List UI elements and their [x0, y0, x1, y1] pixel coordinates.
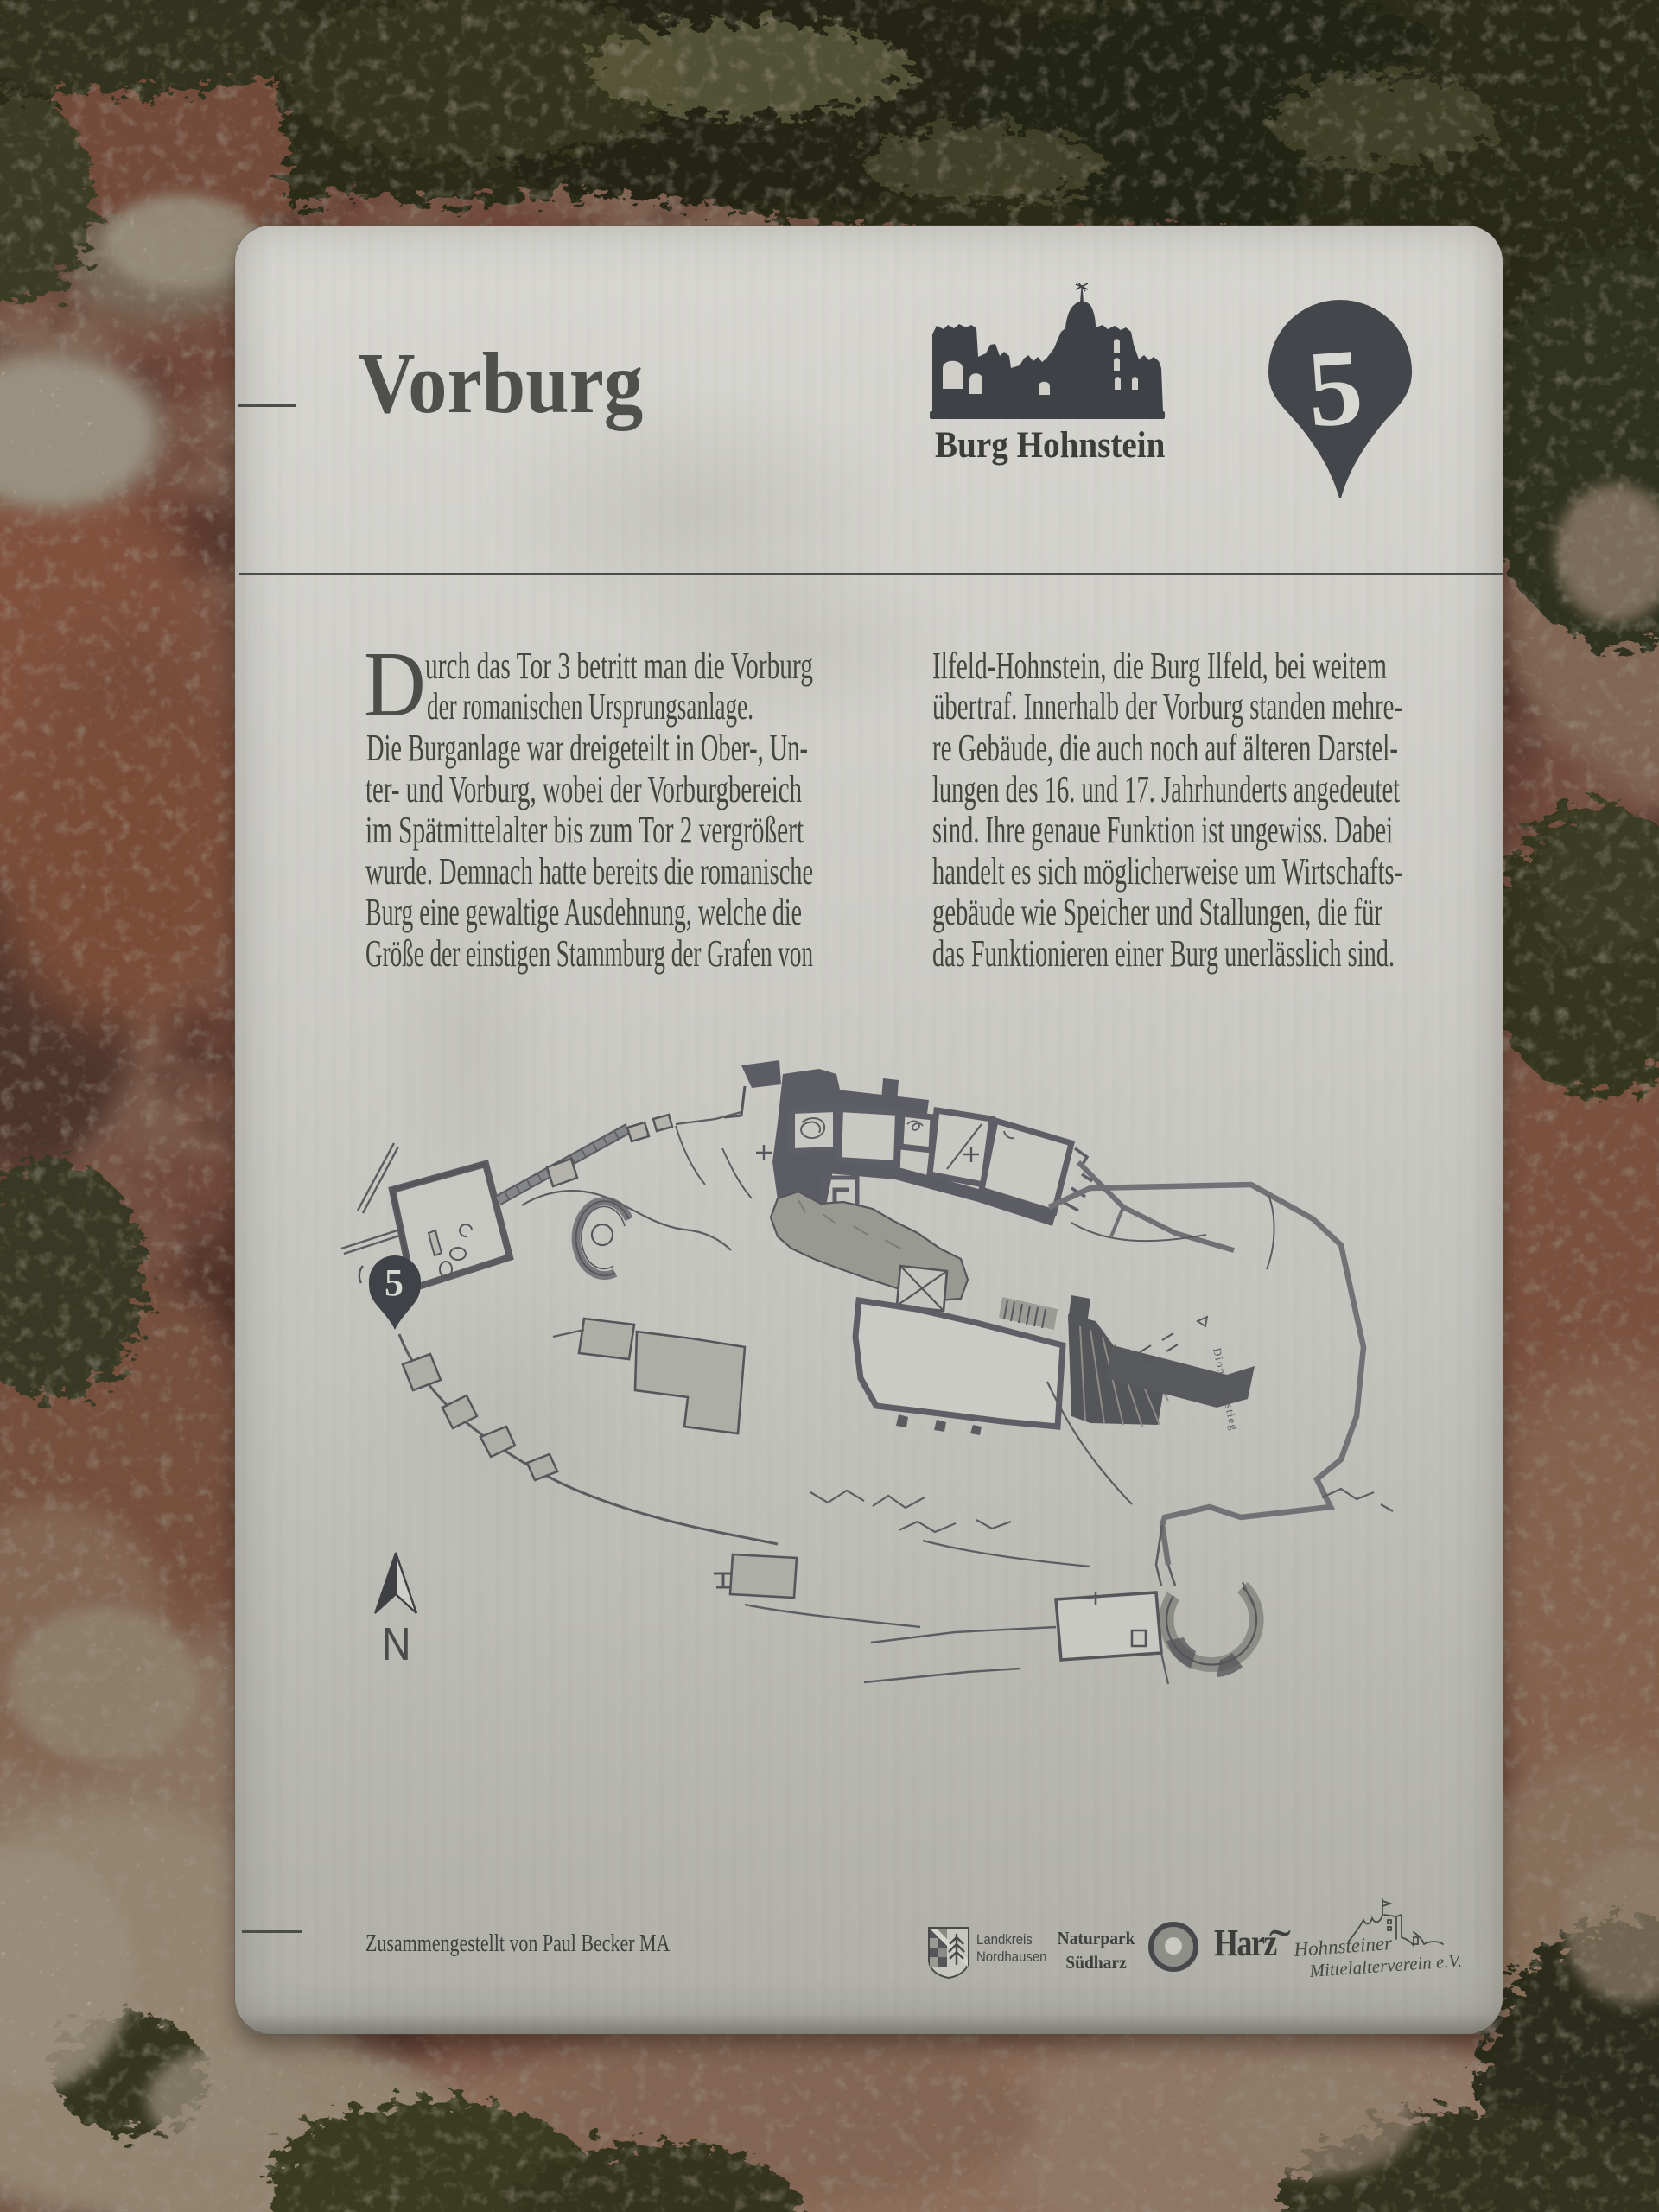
svg-text:N: N [382, 1618, 411, 1670]
svg-text:5: 5 [1304, 327, 1367, 450]
svg-text:5: 5 [385, 1262, 404, 1304]
